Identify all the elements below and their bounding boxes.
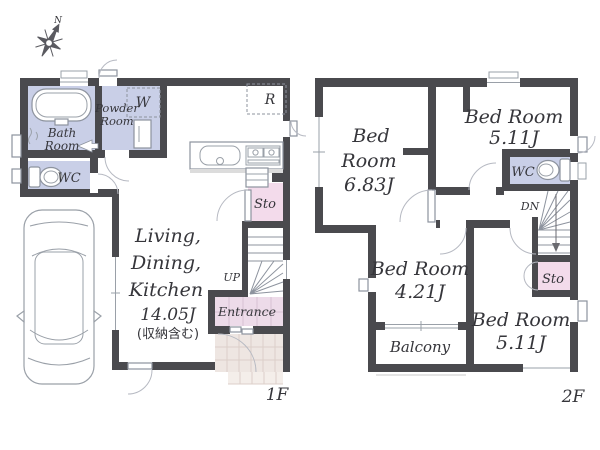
bed2-door-arc bbox=[469, 163, 496, 190]
ldk-label-2: Dining, bbox=[130, 252, 201, 274]
window-wc-2f bbox=[570, 162, 578, 180]
bedroom4-label-1: Bed Room bbox=[471, 309, 571, 331]
wc-label-1f: WC bbox=[57, 171, 80, 186]
floorplan-image: N bbox=[0, 0, 600, 450]
window-bath-left bbox=[12, 135, 21, 157]
stairs-down bbox=[538, 191, 570, 253]
window-bed3-left bbox=[368, 278, 376, 292]
compass-icon: N bbox=[30, 16, 70, 62]
bed3-door-arc bbox=[440, 228, 466, 254]
bedroom1-label-1: Bed bbox=[351, 125, 389, 147]
toilet-icon-2f bbox=[537, 159, 570, 181]
entrance-label: Entrance bbox=[217, 304, 276, 319]
storage-label-2f: Sto bbox=[542, 272, 564, 287]
window-wc-left bbox=[12, 169, 21, 183]
kitchen-steps bbox=[246, 168, 268, 187]
porch-area bbox=[215, 334, 283, 372]
door-right-2f bbox=[578, 137, 587, 152]
powder-room-label-1: Powder bbox=[94, 101, 140, 115]
floor2-plan: Bed Room 6.83J Bed Room 5.11J WC DN Sto … bbox=[313, 72, 595, 407]
ldk-label-3: Kitchen bbox=[128, 279, 203, 301]
entrance-sliding-door bbox=[242, 329, 253, 334]
stairs-up-label: UP bbox=[223, 271, 240, 284]
compass-north-label: N bbox=[53, 16, 63, 26]
bed1-door-arc bbox=[400, 190, 432, 222]
powder-cabinet bbox=[134, 120, 151, 148]
bedroom2-label-1: Bed Room bbox=[464, 106, 564, 128]
kitchen-counter bbox=[190, 142, 283, 173]
floor2-label: 2F bbox=[561, 387, 586, 407]
storage-label-1f: Sto bbox=[254, 197, 276, 212]
window-bed4-right bbox=[570, 300, 578, 322]
door-ldk-bottom bbox=[128, 363, 152, 369]
door-top-leaf bbox=[99, 70, 117, 76]
bath-room-label-2: Room bbox=[44, 139, 80, 153]
powder-room-label-2: Room bbox=[99, 114, 134, 128]
floor1-label: 1F bbox=[266, 385, 290, 405]
wc-label-2f: WC bbox=[511, 165, 534, 180]
balcony-label: Balcony bbox=[389, 338, 451, 356]
ldk-label-1: Living, bbox=[134, 225, 201, 247]
fridge-label: R bbox=[264, 92, 276, 108]
bedroom2-label-2: 5.11J bbox=[489, 127, 540, 149]
bedroom1-label-2: Room bbox=[340, 150, 396, 172]
washer-label: W bbox=[136, 95, 152, 111]
bath-room-label-1: Bath bbox=[47, 126, 77, 140]
floor1-plan: Bath Room Powder Room W WC R Living, Din… bbox=[12, 60, 306, 405]
ldk-label-5: (収納含む) bbox=[137, 326, 199, 342]
bedroom4-label-2: 5.11J bbox=[496, 332, 547, 354]
bedroom1-label-3: 6.83J bbox=[344, 174, 395, 196]
stairs-up bbox=[248, 237, 283, 294]
car-icon bbox=[17, 210, 101, 384]
bedroom3-label-1: Bed Room bbox=[370, 258, 470, 280]
stairs-down-label: DN bbox=[520, 200, 540, 213]
window-bath-top bbox=[61, 71, 87, 78]
ldk-label-4: 14.05J bbox=[140, 305, 197, 325]
entrance-step-area bbox=[228, 372, 283, 384]
bedroom3-label-2: 4.21J bbox=[394, 281, 446, 303]
